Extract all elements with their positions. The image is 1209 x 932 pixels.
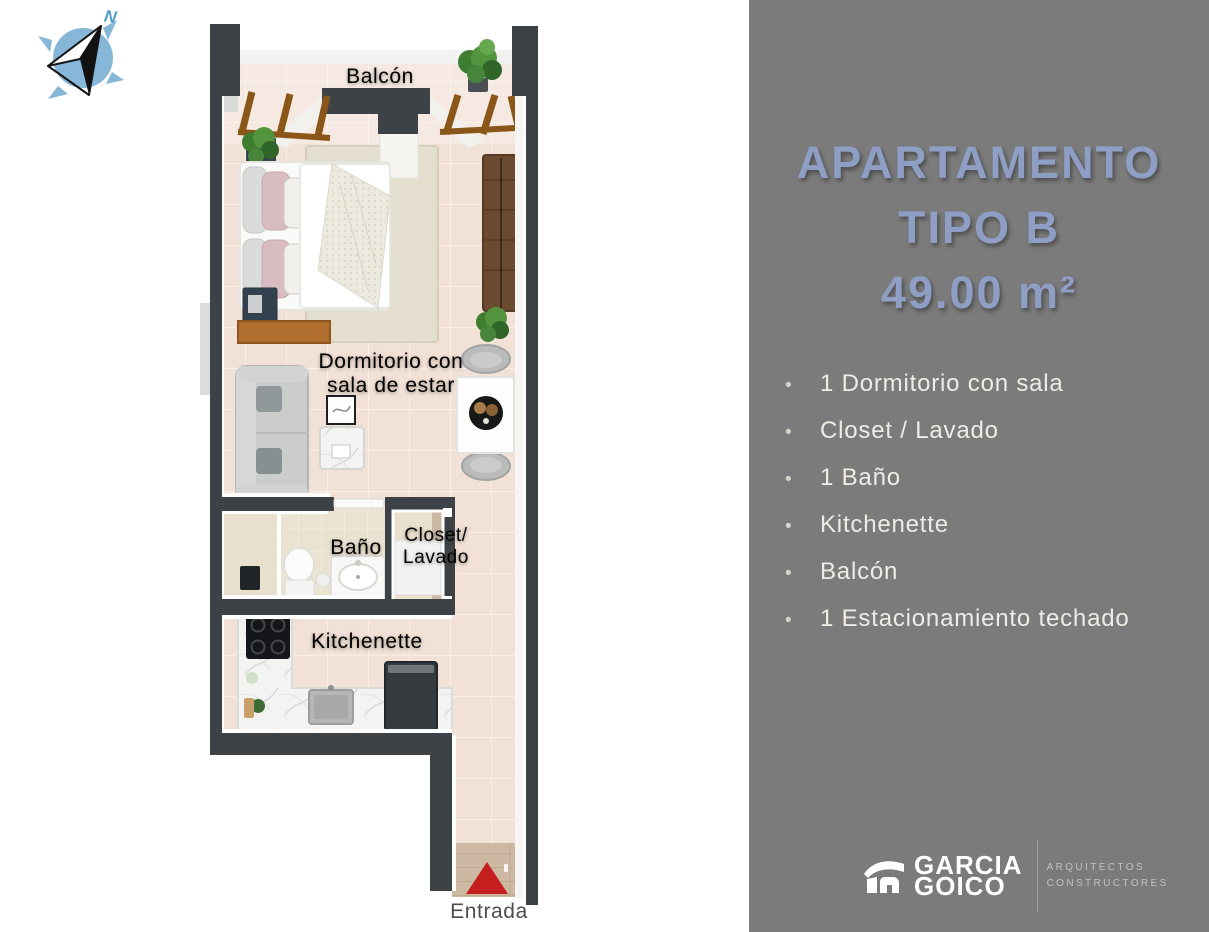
feature-text: Balcón <box>820 559 898 584</box>
info-panel: APARTAMENTO TIPO B 49.00 m² •1 Dormitori… <box>749 0 1209 932</box>
title-line-3: 49.00 m² <box>749 260 1209 325</box>
feature-item: •1 Baño <box>785 465 1209 492</box>
feature-item: •1 Dormitorio con sala <box>785 371 1209 398</box>
logo-divider <box>1037 840 1038 912</box>
coffee-table <box>320 427 364 469</box>
tagline-line-2: CONSTRUCTORES <box>1047 876 1169 892</box>
closet-label: Closet/ Lavado <box>403 525 469 569</box>
feature-text: 1 Baño <box>820 465 901 490</box>
tagline-line-1: ARQUITECTOS <box>1047 860 1169 876</box>
wood-bench <box>238 321 330 343</box>
feature-text: 1 Dormitorio con sala <box>820 371 1064 396</box>
nightstand <box>243 288 277 324</box>
bullet-icon: • <box>785 561 820 586</box>
balcony-label: Balcón <box>346 65 414 89</box>
bedroom-label: Dormitorio con sala de estar <box>319 350 464 398</box>
feature-list: •1 Dormitorio con sala •Closet / Lavado … <box>749 371 1209 633</box>
feature-item: •1 Estacionamiento techado <box>785 606 1209 633</box>
bullet-icon: • <box>785 514 820 539</box>
feature-item: •Kitchenette <box>785 512 1209 539</box>
bullet-icon: • <box>785 420 820 445</box>
entrance-label: Entrada <box>450 900 528 924</box>
bedroom-label-line2: sala de estar <box>319 374 464 398</box>
garcia-goico-logo-icon <box>863 857 905 895</box>
closet-label-line1: Closet/ <box>403 525 469 547</box>
feature-text: Closet / Lavado <box>820 418 999 443</box>
title-line-2: TIPO B <box>749 195 1209 260</box>
wall-art <box>327 396 355 424</box>
bullet-icon: • <box>785 373 820 398</box>
wardrobe <box>483 155 519 311</box>
brand-name: GARCIA GOICO <box>914 855 1023 897</box>
compass-icon: N <box>38 7 124 99</box>
feature-text: 1 Estacionamiento techado <box>820 606 1130 631</box>
kitchenette-label: Kitchenette <box>311 630 423 654</box>
sofa <box>236 366 308 500</box>
slide: N Balcón Dormitorio con sala de estar Ba… <box>0 0 1209 932</box>
feature-item: •Balcón <box>785 559 1209 586</box>
dining-set <box>457 345 514 480</box>
bullet-icon: • <box>785 608 820 633</box>
feature-text: Kitchenette <box>820 512 949 537</box>
bullet-icon: • <box>785 467 820 492</box>
apartment-title: APARTAMENTO TIPO B 49.00 m² <box>749 130 1209 325</box>
feature-item: •Closet / Lavado <box>785 418 1209 445</box>
bedroom-label-line1: Dormitorio con <box>319 350 464 374</box>
brand-tagline: ARQUITECTOS CONSTRUCTORES <box>1047 860 1169 892</box>
bathroom-label: Baño <box>330 536 381 560</box>
closet-label-line2: Lavado <box>403 547 469 569</box>
floor-plan-render: N <box>0 0 748 932</box>
compass-n-letter: N <box>103 7 119 28</box>
company-logo: GARCIA GOICO ARQUITECTOS CONSTRUCTORES <box>863 840 1169 912</box>
title-line-1: APARTAMENTO <box>749 130 1209 195</box>
